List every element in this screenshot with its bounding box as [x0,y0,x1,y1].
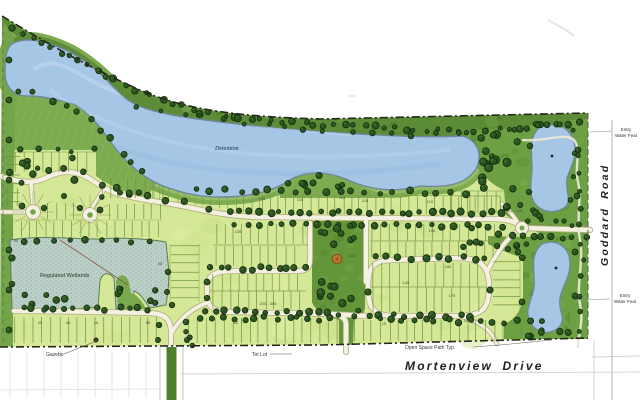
svg-text:175: 175 [449,293,456,298]
svg-text:Water Feat: Water Feat [614,299,637,304]
svg-text:15: 15 [382,321,387,326]
svg-text:Gazebo: Gazebo [46,352,64,358]
svg-text:Regulated Wetlands: Regulated Wetlands [40,273,90,279]
svg-text:40: 40 [66,320,71,325]
svg-text:160: 160 [349,253,356,258]
svg-text:Entry: Entry [620,293,631,298]
svg-text:105: 105 [259,196,266,201]
svg-text:200 - 305: 200 - 305 [260,301,278,306]
svg-text:46: 46 [94,320,99,325]
svg-text:135: 135 [235,229,242,234]
svg-text:165: 165 [445,264,452,269]
svg-text:110: 110 [427,199,434,204]
svg-text:58: 58 [158,261,163,266]
svg-text:25: 25 [38,320,43,325]
svg-text:Tot Lot: Tot Lot [252,352,268,358]
svg-text:126: 126 [516,208,523,213]
svg-text:20: 20 [234,320,239,325]
svg-text:55: 55 [14,238,19,243]
svg-text:115: 115 [339,195,346,200]
svg-text:Water Feat: Water Feat [615,133,638,138]
svg-text:110: 110 [297,197,304,202]
svg-text:85: 85 [146,320,151,325]
svg-text:145: 145 [403,280,410,285]
svg-text:10: 10 [464,318,469,323]
svg-text:Mortenview Drive: Mortenview Drive [405,359,544,373]
svg-text:Detention: Detention [214,146,239,152]
svg-text:Open Space Path Typ.: Open Space Path Typ. [405,345,455,351]
svg-text:150: 150 [429,228,436,233]
svg-text:Entry: Entry [621,127,632,132]
svg-text:Goddard Road: Goddard Road [599,164,611,266]
svg-text:115: 115 [362,198,369,203]
svg-text:70: 70 [98,207,103,212]
